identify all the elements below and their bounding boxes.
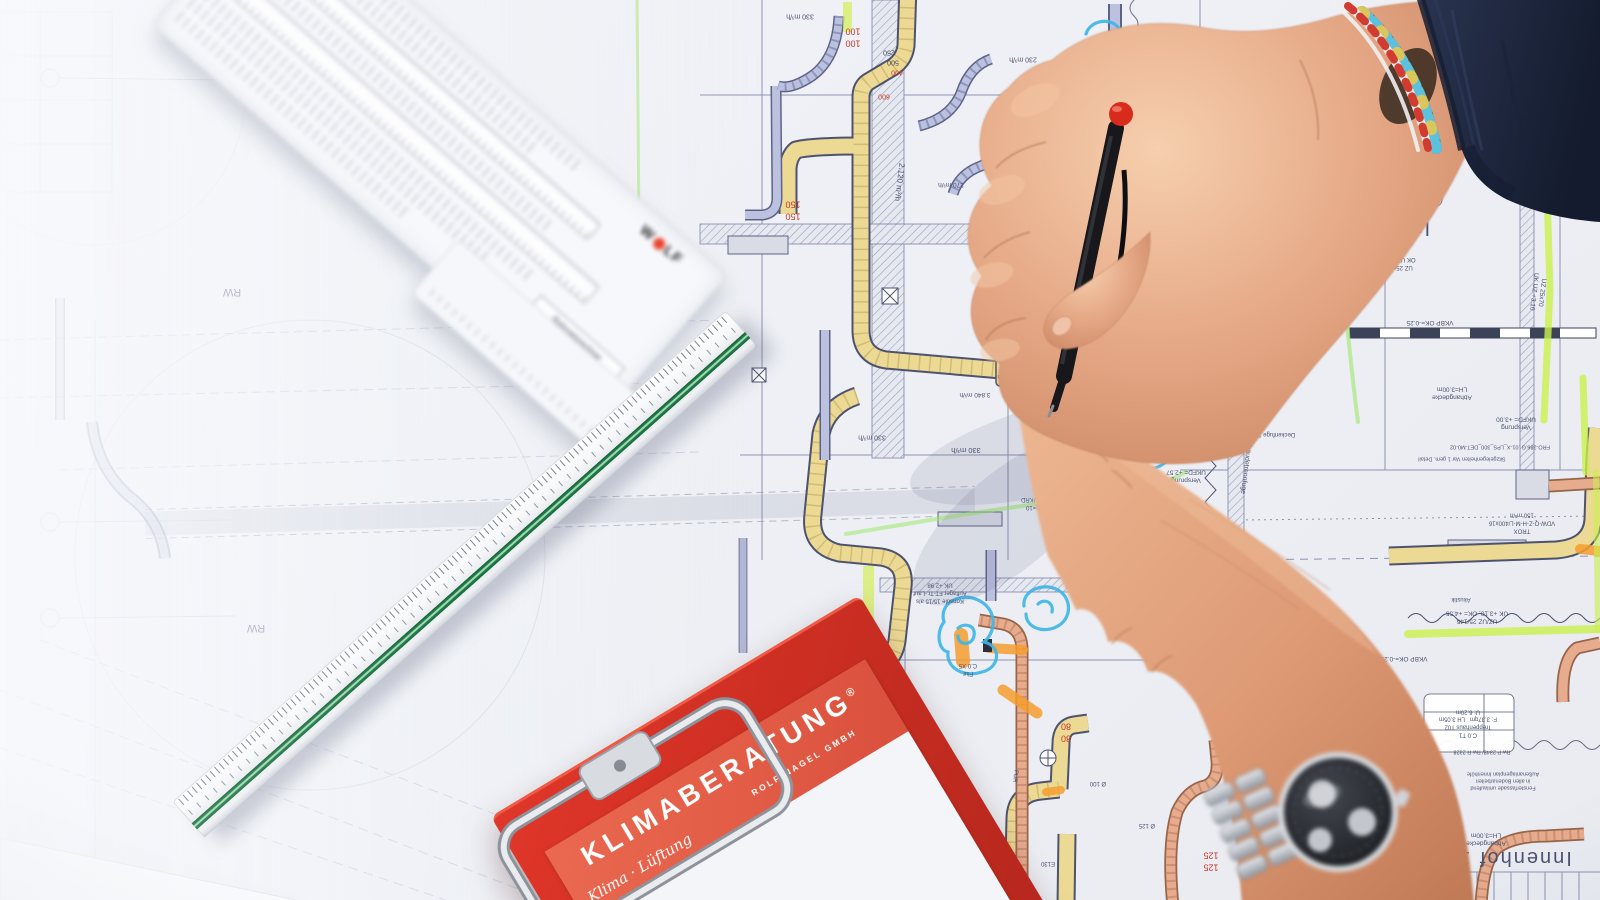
photo-blueprint-scene: Innenhof 11Innenhof 12RWRWRWC.0 T1 Trepp…: [0, 0, 1600, 900]
watch-subdial: [1308, 828, 1332, 852]
pen-button: [1109, 102, 1133, 126]
watch-subdial: [1348, 808, 1376, 836]
watch-face: [1281, 755, 1395, 869]
hands-layer: [0, 0, 1600, 900]
